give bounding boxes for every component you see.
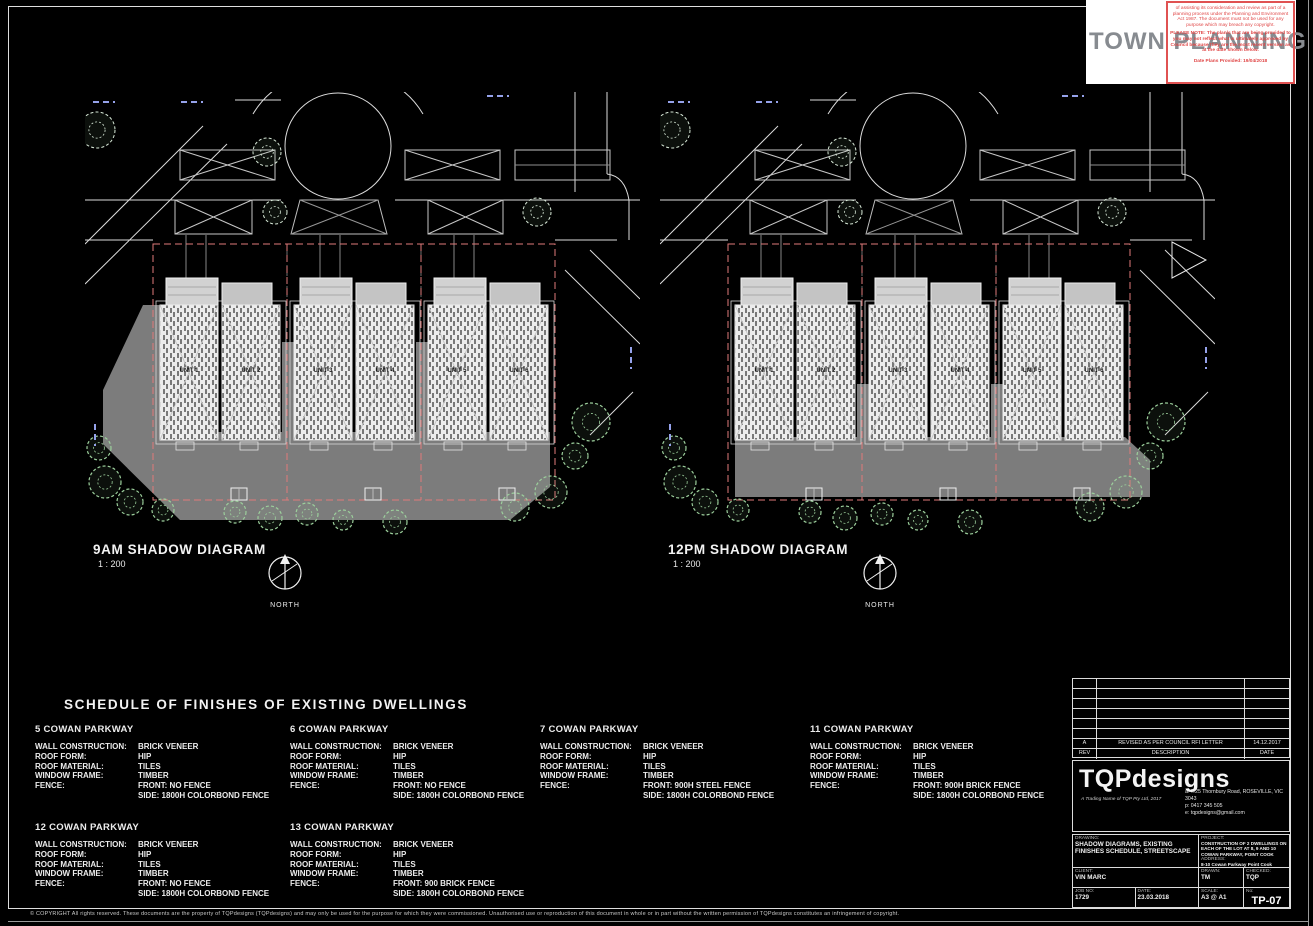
field-label: WINDOW FRAME: [290,771,393,781]
stamp-date-line: Date Plans Provided: 19/04/2018 [1170,59,1291,65]
sheet-number-label: No: [1246,889,1287,894]
field-value: HIP [393,850,406,860]
field-label: ROOF MATERIAL: [35,860,138,870]
field-label: ROOF FORM: [290,752,393,762]
unit-label: UNIT 3 [313,368,333,374]
field-value: TILES [393,860,416,870]
drawn-checked-cell: DRAWN: TM CHECKED: TQP [1199,868,1289,887]
revision-row-empty [1073,689,1289,699]
drawn-value: TM [1201,874,1241,881]
field-value: BRICK VENEER [393,840,453,850]
field-value: HIP [913,752,926,762]
field-value: TIMBER [393,771,424,781]
schedule-entry: 6 COWAN PARKWAY WALL CONSTRUCTION:BRICK … [290,724,542,801]
field-label: ROOF MATERIAL: [810,762,913,772]
project-cell: PROJECT: CONSTRUCTION OF 2 DWELLINGS ON … [1199,835,1289,868]
title-block: A REVISED AS PER COUNCIL RFI LETTER 14.1… [1072,678,1290,908]
revision-description: REVISED AS PER COUNCIL RFI LETTER [1097,739,1245,748]
field-value: TIMBER [138,869,169,879]
revision-rev: A [1073,739,1097,748]
field-label [290,791,393,801]
drawing-cell: DRAWING: SHADOW DIAGRAMS, EXISTING FINIS… [1073,835,1198,868]
field-label [35,791,138,801]
north-label: NORTH [257,602,313,609]
diagram-title: 9AM SHADOW DIAGRAM [93,542,266,557]
field-value: FRONT: 900H STEEL FENCE [643,781,751,791]
field-value: HIP [138,752,151,762]
field-value: TILES [138,762,161,772]
field-label: ROOF MATERIAL: [540,762,643,772]
job-cell: JOB NO: 1729 [1073,888,1136,907]
field-value: TIMBER [913,771,944,781]
diagram-scale: 1 : 200 [673,559,701,569]
field-label: WALL CONSTRUCTION: [540,742,643,752]
site-plan-9am: UNIT 1UNIT 2UNIT 3UNIT 4UNIT 5UNIT 6 [85,92,640,537]
north-label: NORTH [852,602,908,609]
field-value: BRICK VENEER [393,742,453,752]
revision-header-row: REV DESCRIPTION DATE [1073,749,1289,759]
entry-address: 5 COWAN PARKWAY [35,724,287,735]
town-planning-stamp: TOWN PLANNING of assisting its considera… [1086,0,1296,84]
field-value: HIP [138,850,151,860]
firm-contacts: a: 7/25 Thornbury Road, ROSEVILLE, VIC 3… [1185,789,1285,817]
field-label: ROOF FORM: [540,752,643,762]
contact-address: a: 7/25 Thornbury Road, ROSEVILLE, VIC 3… [1185,789,1285,803]
schedule-entry: 5 COWAN PARKWAY WALL CONSTRUCTION:BRICK … [35,724,287,801]
field-value: HIP [393,752,406,762]
sheet-outer-edge-bottom [8,921,1308,922]
revision-row-empty [1073,729,1289,739]
field-value: FRONT: NO FENCE [393,781,466,791]
unit-label: UNIT 2 [816,368,836,374]
unit-label: UNIT 1 [179,368,199,374]
unit-label: UNIT 1 [754,368,774,374]
field-label: FENCE: [290,879,393,889]
field-label: FENCE: [540,781,643,791]
diagram-9am: UNIT 1UNIT 2UNIT 3UNIT 4UNIT 5UNIT 6 9AM… [85,92,640,602]
field-value: TILES [643,762,666,772]
contact-email: e: tqpdesigns@gmail.com [1185,810,1285,817]
field-label: ROOF FORM: [290,850,393,860]
field-label: ROOF MATERIAL: [290,762,393,772]
schedule-entry: 13 COWAN PARKWAY WALL CONSTRUCTION:BRICK… [290,822,542,899]
sheet-number-value: TP-07 [1246,895,1287,907]
field-label [540,791,643,801]
field-value: FRONT: 900H BRICK FENCE [913,781,1021,791]
revision-row-empty [1073,699,1289,709]
field-label: FENCE: [35,781,138,791]
drawn-cell: DRAWN: TM [1199,868,1244,886]
stamp-note-text: PLEASE NOTE: The plan/s that are being p… [1170,31,1291,53]
field-value: BRICK VENEER [138,742,198,752]
job-date-cell: JOB NO: 1729 DATE: 23.03.2018 [1073,888,1198,907]
entry-address: 7 COWAN PARKWAY [540,724,792,735]
sheet-number-cell: No: TP-07 [1244,888,1289,907]
field-value: BRICK VENEER [138,840,198,850]
firm-tagline: A Trading Name of TQP Pty Ltd, 2017 [1081,797,1161,802]
north-arrow: NORTH [257,550,313,609]
unit-label: UNIT 5 [1022,368,1042,374]
sheet-outer-edge-right [1308,0,1309,926]
revision-table: A REVISED AS PER COUNCIL RFI LETTER 14.1… [1072,678,1290,758]
field-label: FENCE: [810,781,913,791]
field-value: FRONT: NO FENCE [138,879,211,889]
field-value: SIDE: 1800H COLORBOND FENCE [643,791,774,801]
client-cell: CLIENT: VIN MARC [1073,868,1198,888]
project-value: CONSTRUCTION OF 2 DWELLINGS ON EACH OF T… [1201,841,1287,857]
checked-cell: CHECKED: TQP [1244,868,1289,886]
field-label [35,889,138,899]
revision-header-rev: REV [1073,749,1097,759]
revision-row: A REVISED AS PER COUNCIL RFI LETTER 14.1… [1073,739,1289,749]
drawing-info-box: DRAWING: SHADOW DIAGRAMS, EXISTING FINIS… [1072,834,1290,908]
unit-label: UNIT 6 [1084,368,1104,374]
dwellings: UNIT 1UNIT 2UNIT 3UNIT 4UNIT 5UNIT 6 [731,278,1129,450]
field-label: WINDOW FRAME: [35,869,138,879]
field-value: FRONT: 900 BRICK FENCE [393,879,495,889]
field-value: TILES [138,860,161,870]
field-label: WINDOW FRAME: [540,771,643,781]
north-compass-icon [262,550,308,596]
field-value: TIMBER [138,771,169,781]
field-value: TILES [913,762,936,772]
field-label: WINDOW FRAME: [35,771,138,781]
field-value: TILES [393,762,416,772]
field-value: BRICK VENEER [643,742,703,752]
diagram-title: 12PM SHADOW DIAGRAM [668,542,848,557]
contact-phone: p: 0417 345 505 [1185,803,1285,810]
north-arrow: NORTH [852,550,908,609]
plan-sheet: UNIT 1UNIT 2UNIT 3UNIT 4UNIT 5UNIT 6 9AM… [0,0,1313,926]
field-value: SIDE: 1800H COLORBOND FENCE [138,791,269,801]
entry-address: 13 COWAN PARKWAY [290,822,542,833]
unit-label: UNIT 3 [888,368,908,374]
field-label: WINDOW FRAME: [810,771,913,781]
field-label: WALL CONSTRUCTION: [35,840,138,850]
schedule-title: SCHEDULE OF FINISHES OF EXISTING DWELLIN… [64,697,468,712]
field-value: TIMBER [643,771,674,781]
checked-value: TQP [1246,874,1287,881]
date-value: 23.03.2018 [1138,894,1197,901]
scale-value: A3 @ A1 [1201,894,1241,901]
date-cell: DATE: 23.03.2018 [1136,888,1199,907]
site-plan-12pm: UNIT 1UNIT 2UNIT 3UNIT 4UNIT 5UNIT 6 [660,92,1215,537]
scale-sheet-cell: SCALE: A3 @ A1 No: TP-07 [1199,888,1289,907]
north-compass-icon [857,550,903,596]
drawing-value: SHADOW DIAGRAMS, EXISTING FINISHES SCHED… [1075,841,1196,855]
job-value: 1729 [1075,894,1133,901]
revision-row-empty [1073,679,1289,689]
stamp-note-box: of assisting its consideration and revie… [1166,1,1295,84]
revision-row-empty [1073,719,1289,729]
field-label: WINDOW FRAME: [290,869,393,879]
diagram-12pm: UNIT 1UNIT 2UNIT 3UNIT 4UNIT 5UNIT 6 12P… [660,92,1215,602]
dwellings: UNIT 1UNIT 2UNIT 3UNIT 4UNIT 5UNIT 6 [156,278,554,450]
field-value: SIDE: 1800H COLORBOND FENCE [393,889,524,899]
firm-logo-box: TQPdesigns A Trading Name of TQP Pty Ltd… [1072,760,1290,832]
easement-arrow [1172,242,1206,278]
schedule-entry: 7 COWAN PARKWAY WALL CONSTRUCTION:BRICK … [540,724,792,801]
field-label: ROOF MATERIAL: [35,762,138,772]
field-label: WALL CONSTRUCTION: [290,840,393,850]
revision-header-description: DESCRIPTION [1097,749,1245,759]
revision-row-empty [1073,709,1289,719]
field-label: ROOF FORM: [35,850,138,860]
field-value: SIDE: 1800H COLORBOND FENCE [393,791,524,801]
field-label [810,791,913,801]
field-value: SIDE: 1800H COLORBOND FENCE [138,889,269,899]
unit-label: UNIT 4 [375,368,395,374]
field-label: FENCE: [35,879,138,889]
unit-label: UNIT 4 [950,368,970,374]
entry-address: 11 COWAN PARKWAY [810,724,1062,735]
field-value: FRONT: NO FENCE [138,781,211,791]
revision-date: 14.12.2017 [1245,739,1289,748]
diagram-scale: 1 : 200 [98,559,126,569]
field-label [290,889,393,899]
field-label: FENCE: [290,781,393,791]
entry-address: 12 COWAN PARKWAY [35,822,287,833]
schedule-entry: 12 COWAN PARKWAY WALL CONSTRUCTION:BRICK… [35,822,287,899]
revision-header-date: DATE [1245,749,1289,759]
field-label: WALL CONSTRUCTION: [810,742,913,752]
schedule-entry: 11 COWAN PARKWAY WALL CONSTRUCTION:BRICK… [810,724,1062,801]
field-label: WALL CONSTRUCTION: [290,742,393,752]
field-value: SIDE: 1800H COLORBOND FENCE [913,791,1044,801]
copyright-line: © COPYRIGHT All rights reserved. These d… [30,911,899,917]
unit-label: UNIT 6 [509,368,529,374]
field-value: TIMBER [393,869,424,879]
unit-label: UNIT 2 [241,368,261,374]
stamp-disclaimer: of assisting its consideration and revie… [1173,6,1288,28]
field-label: WALL CONSTRUCTION: [35,742,138,752]
entry-address: 6 COWAN PARKWAY [290,724,542,735]
address-value: 8-10 Cowan Parkway Point Cook [1201,862,1287,867]
field-label: ROOF MATERIAL: [290,860,393,870]
field-label: ROOF FORM: [35,752,138,762]
unit-label: UNIT 5 [447,368,467,374]
field-value: HIP [643,752,656,762]
field-label: ROOF FORM: [810,752,913,762]
scale-cell: SCALE: A3 @ A1 [1199,888,1244,907]
field-value: BRICK VENEER [913,742,973,752]
client-value: VIN MARC [1075,874,1196,881]
